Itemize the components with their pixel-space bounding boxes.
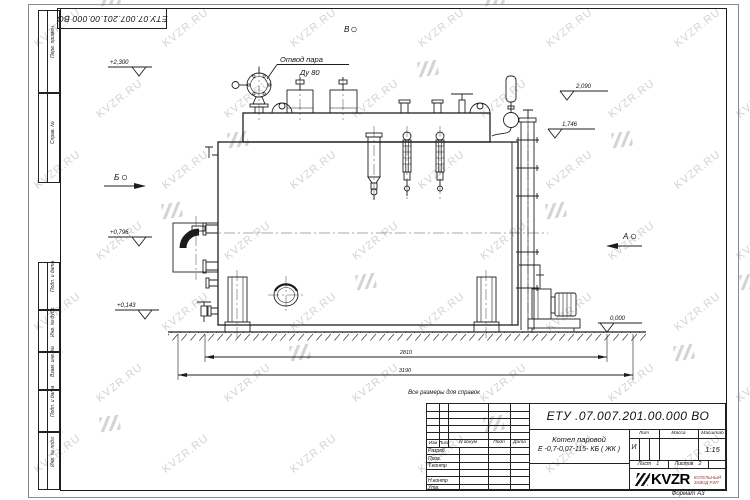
- row-nkontr: Н.контр: [428, 478, 459, 484]
- pressure-gauge: [492, 76, 519, 136]
- svg-text:Б: Б: [114, 173, 119, 182]
- reference-note: Все размеры для справок: [398, 390, 490, 396]
- elevation-marks: +2,300 2,090 1,746 +0,796 +0,143 0,000: [108, 60, 642, 332]
- left-nozzles: [197, 147, 218, 322]
- scale-label: Масштаб: [698, 431, 727, 436]
- svg-text:+0,796: +0,796: [110, 230, 129, 236]
- col-ndoc: N докум: [448, 440, 488, 445]
- burner-box: [173, 223, 218, 272]
- col-podp: Подп: [488, 440, 510, 445]
- lit-label: Лит: [629, 431, 659, 436]
- svg-text:Отвод пара: Отвод пара: [280, 55, 323, 64]
- format-label: Формат А3: [648, 491, 728, 497]
- svg-text:+0,143: +0,143: [117, 303, 136, 309]
- drawing-sheet: KVZR.RUKVZR.RUKVZR.RUKVZR.RUKVZR.RUKVZR.…: [0, 0, 750, 500]
- product-name-line2: Е -0,7-0,07-115- КБ ( ЖК ): [529, 446, 629, 453]
- rear-column: [516, 110, 539, 330]
- view-arrow-a: А: [606, 232, 642, 249]
- mass-label: Масса: [659, 431, 698, 436]
- svg-text:0,000: 0,000: [610, 316, 626, 322]
- lit-value: И: [629, 444, 639, 451]
- doc-number: ЕТУ .07.007.201.00.000 ВО: [529, 409, 727, 423]
- row-razrab: Разраб.: [428, 448, 459, 454]
- col-izm: Изм: [427, 440, 439, 445]
- title-block: Изм Лист N докум Подп Дата Разраб. Пров.…: [426, 403, 726, 490]
- kvzr-logo-icon: [635, 473, 651, 486]
- svg-text:2810: 2810: [399, 350, 413, 356]
- steam-outlet-label: Отвод пара Ду 80: [267, 55, 349, 79]
- center-lines: [196, 66, 548, 340]
- view-arrow-b: Б: [104, 173, 146, 189]
- scale-value: 1:15: [698, 445, 727, 454]
- svg-text:Ду 80: Ду 80: [299, 68, 320, 77]
- casing-stubs: [399, 100, 443, 113]
- svg-text:2,090: 2,090: [575, 84, 592, 90]
- product-name-line1: Котел паровой: [529, 435, 629, 444]
- casing-valve: [451, 94, 473, 113]
- steam-outlet-valve: [232, 67, 271, 113]
- sheet-cell: Лист1: [629, 461, 668, 467]
- svg-text:В: В: [344, 25, 350, 34]
- dimensions: 2810 3190: [178, 334, 633, 380]
- kvzr-logo-subtitle: КОТЕЛЬНЫЙ ЗАВОД РЭП: [694, 475, 721, 485]
- ground-line: [168, 332, 646, 341]
- col-list: Лист: [439, 440, 448, 445]
- view-label-v: В: [344, 25, 356, 34]
- svg-text:+2,300: +2,300: [110, 60, 129, 66]
- sheets-cell: Листов2: [668, 461, 708, 467]
- row-tkontr: Т.контр: [428, 463, 459, 469]
- col-data: Дата: [510, 440, 529, 445]
- row-prov: Пров.: [428, 456, 459, 462]
- svg-text:3190: 3190: [399, 368, 412, 374]
- row-utv: Утв.: [428, 485, 459, 491]
- company-logo-cell: KVZR КОТЕЛЬНЫЙ ЗАВОД РЭП: [629, 468, 727, 491]
- svg-text:А: А: [622, 232, 628, 241]
- safety-valves: [287, 77, 357, 113]
- kvzr-logo-text: KVZR: [651, 471, 690, 488]
- svg-text:1,746: 1,746: [562, 122, 578, 128]
- support-legs: [225, 277, 499, 332]
